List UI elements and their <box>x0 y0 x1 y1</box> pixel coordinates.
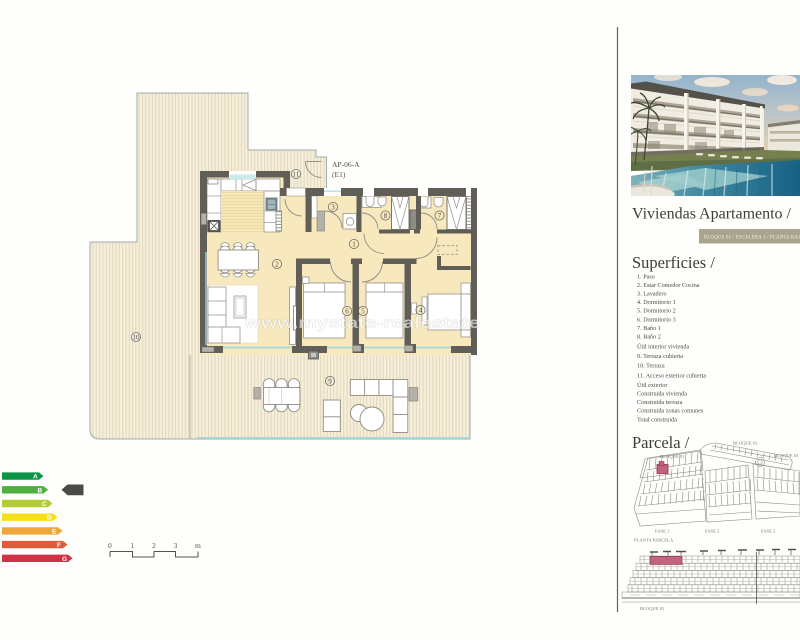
svg-text:Viviendas Apartamento /: Viviendas Apartamento / <box>632 206 792 223</box>
svg-text:Total construida: Total construida <box>637 416 677 423</box>
svg-text:0: 0 <box>108 541 112 550</box>
svg-text:FASE 3: FASE 3 <box>761 529 776 534</box>
svg-text:8. Baño 2: 8. Baño 2 <box>637 334 661 341</box>
svg-text:11: 11 <box>293 171 300 179</box>
svg-text:BLOQUE 02: BLOQUE 02 <box>733 441 758 446</box>
svg-text:A: A <box>33 474 38 481</box>
svg-text:BLOQUE 01 / ESCALERA 1 / PLANT: BLOQUE 01 / ESCALERA 1 / PLANTA BAJA <box>704 235 800 240</box>
svg-text:9: 9 <box>328 378 332 386</box>
svg-text:2: 2 <box>275 261 279 269</box>
svg-text:4: 4 <box>419 307 423 315</box>
svg-text:E: E <box>52 528 57 535</box>
svg-text:3: 3 <box>174 541 178 550</box>
svg-text:1: 1 <box>352 241 356 249</box>
svg-text:(E1): (E1) <box>332 170 346 179</box>
svg-text:5. Dormitorio 2: 5. Dormitorio 2 <box>637 308 676 315</box>
svg-text:7: 7 <box>438 212 442 220</box>
svg-text:Útil interior vivienda: Útil interior vivienda <box>637 343 689 351</box>
svg-text:3: 3 <box>331 204 335 212</box>
svg-text:AP-06-A: AP-06-A <box>332 160 360 169</box>
svg-text:10. Terraza: 10. Terraza <box>637 363 665 370</box>
svg-text:Parcela /: Parcela / <box>632 433 690 452</box>
svg-text:BLOQUE 01: BLOQUE 01 <box>660 454 685 459</box>
svg-text:D: D <box>47 515 52 522</box>
svg-text:1: 1 <box>131 541 135 550</box>
svg-text:1. Paso: 1. Paso <box>637 273 655 280</box>
svg-text:2. Estar Comedor Cocina: 2. Estar Comedor Cocina <box>637 282 700 289</box>
svg-text:6. Dormitorio 3: 6. Dormitorio 3 <box>637 316 676 323</box>
svg-text:BLOQUE 03: BLOQUE 03 <box>774 453 799 458</box>
svg-text:C: C <box>42 501 47 508</box>
svg-text:FASE 1: FASE 1 <box>655 529 670 534</box>
svg-text:PLANTA PARCELA: PLANTA PARCELA <box>634 538 674 543</box>
svg-text:10: 10 <box>133 334 141 342</box>
svg-text:8: 8 <box>384 212 388 220</box>
svg-text:B: B <box>38 487 43 494</box>
svg-text:G: G <box>62 556 67 563</box>
svg-text:Superficies /: Superficies / <box>632 253 715 272</box>
svg-text:2: 2 <box>152 541 156 550</box>
svg-text:FASE 2: FASE 2 <box>705 529 720 534</box>
svg-text:9. Terraza cubierta: 9. Terraza cubierta <box>637 353 683 360</box>
svg-text:Construida vivienda: Construida vivienda <box>637 391 687 398</box>
svg-text:Útil exterior: Útil exterior <box>637 381 667 389</box>
svg-text:www.mystate-realestate: www.mystate-realestate <box>244 315 481 332</box>
svg-text:3. Lavadero: 3. Lavadero <box>637 291 667 298</box>
svg-text:Construida zonas comunes: Construida zonas comunes <box>637 408 704 415</box>
svg-text:F: F <box>57 542 61 549</box>
svg-text:4. Dormitorio 1: 4. Dormitorio 1 <box>637 299 676 306</box>
svg-text:11. Acceso exterior cubierta: 11. Acceso exterior cubierta <box>637 372 706 379</box>
svg-text:BLOQUE 01: BLOQUE 01 <box>640 606 665 611</box>
svg-text:m: m <box>195 541 201 550</box>
svg-text:7. Baño 1: 7. Baño 1 <box>637 325 661 332</box>
svg-text:Construida terraza: Construida terraza <box>637 399 683 406</box>
